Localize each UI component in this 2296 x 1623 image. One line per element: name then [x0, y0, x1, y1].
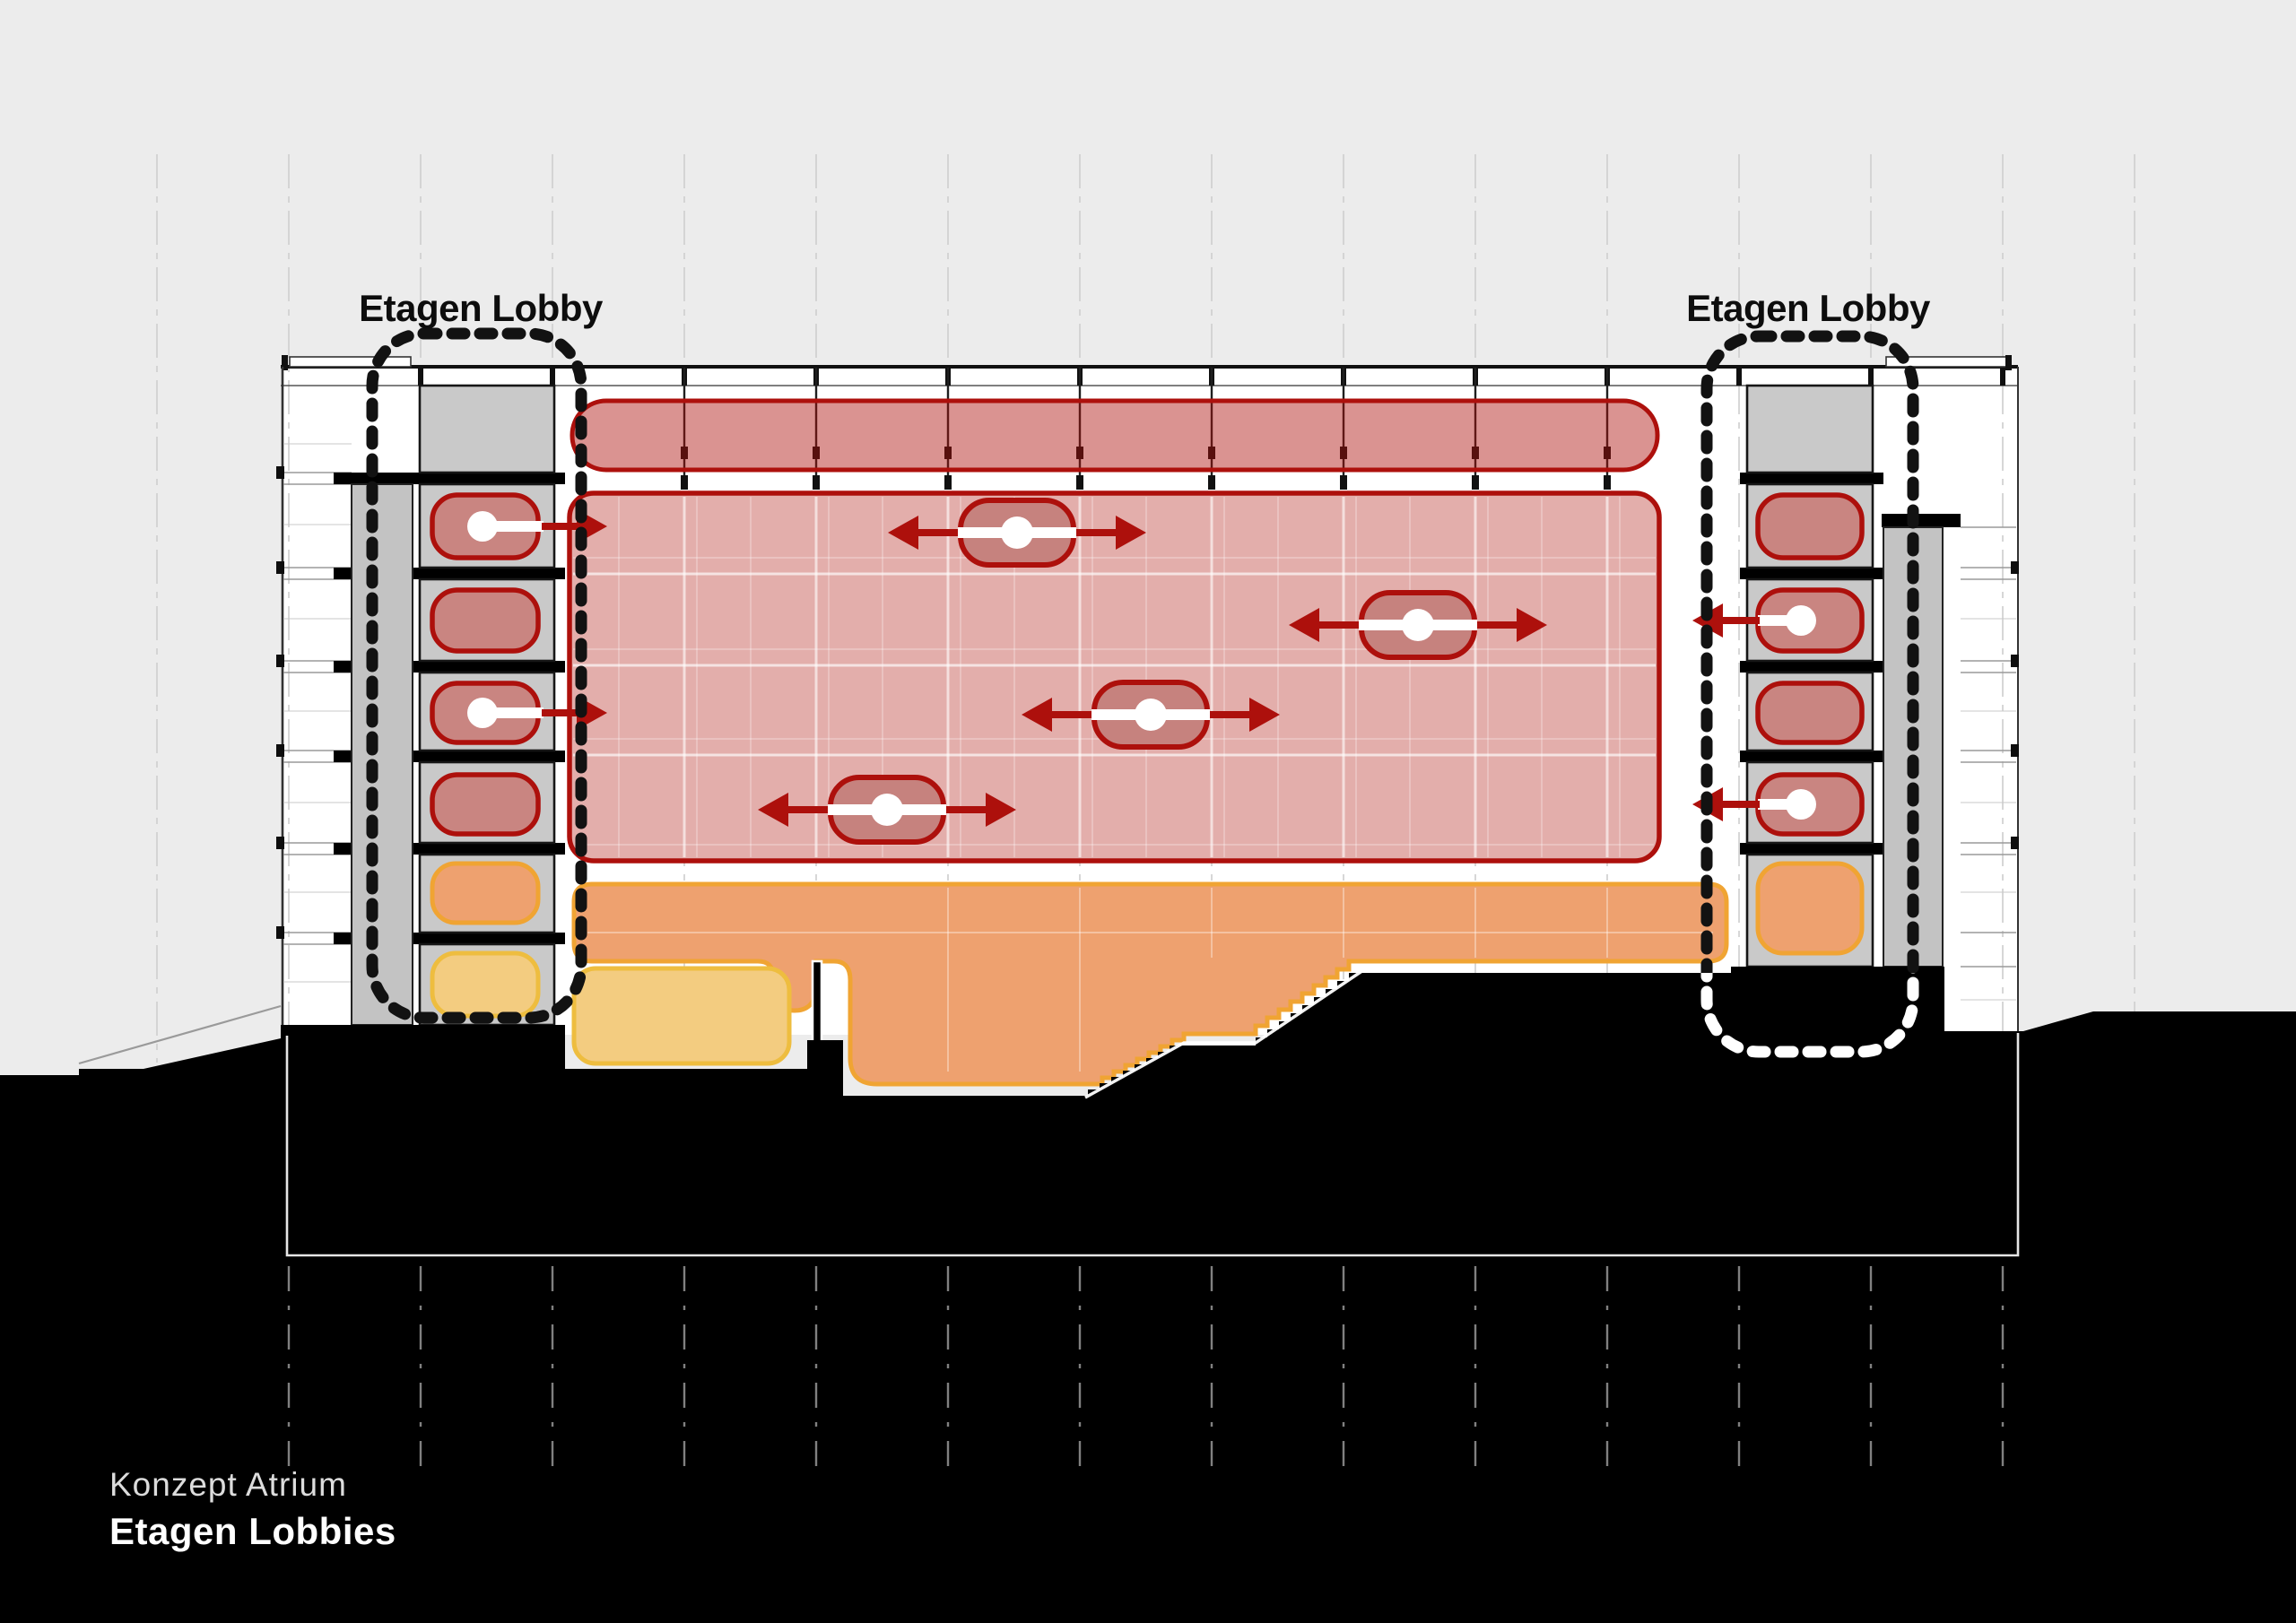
- atrium-zone: [570, 493, 1659, 861]
- tower-cell: [1747, 386, 1873, 473]
- orange-lobby-box: [1758, 864, 1862, 953]
- caption-line2: Etagen Lobbies: [109, 1510, 396, 1552]
- step-slab: [1882, 514, 1961, 527]
- lobby-node-icon: [871, 794, 903, 826]
- lobby-node-icon: [1786, 605, 1816, 636]
- caption-line1: Konzept Atrium: [109, 1466, 347, 1503]
- atrium-pink-area: [570, 493, 1659, 861]
- lobby-node-icon: [1135, 699, 1167, 731]
- etagen-lobby-box: [432, 590, 538, 651]
- yellow-lobby-box: [432, 953, 538, 1016]
- architecture-section-page: Etagen Lobby Etagen Lobby Konzept Atrium…: [0, 0, 2296, 1623]
- yellow-zone-shape: [574, 968, 789, 1063]
- etagen-lobby-box: [1758, 495, 1862, 558]
- atrium-top-band: [572, 401, 1657, 470]
- lobby-node-icon: [467, 511, 498, 542]
- atrium-section-diagram: Etagen Lobby Etagen Lobby Konzept Atrium…: [0, 0, 2296, 1623]
- pit-wall: [813, 961, 822, 1044]
- left-tower-shaft: [352, 484, 413, 1025]
- lobby-node-icon: [1786, 789, 1816, 820]
- lobby-node-icon: [467, 698, 498, 728]
- left-lobby-label: Etagen Lobby: [359, 287, 604, 329]
- etagen-lobby-box: [432, 775, 538, 834]
- lobby-node-icon: [1001, 516, 1033, 549]
- right-lobby-label: Etagen Lobby: [1686, 287, 1931, 329]
- etagen-lobby-box: [1758, 683, 1862, 742]
- lobby-node-icon: [1402, 609, 1434, 641]
- tower-cell: [420, 386, 554, 473]
- orange-lobby-box: [432, 864, 538, 923]
